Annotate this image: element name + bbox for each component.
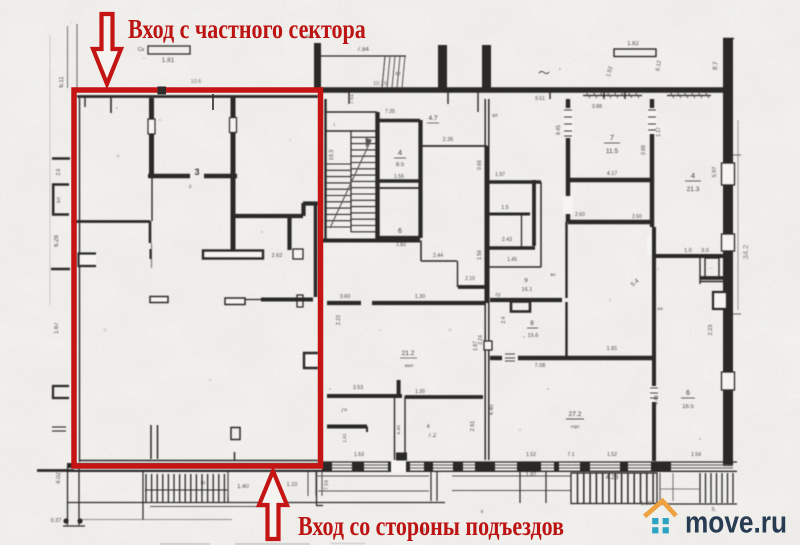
svg-text:1.55: 1.55 — [394, 174, 404, 180]
svg-text:0.88: 0.88 — [641, 145, 647, 155]
svg-text:5.97: 5.97 — [712, 167, 718, 178]
svg-text:1.45: 1.45 — [507, 257, 517, 263]
svg-text:1.56: 1.56 — [477, 250, 483, 260]
svg-text:1.17: 1.17 — [656, 127, 662, 137]
svg-text:0.66: 0.66 — [477, 160, 483, 170]
svg-text:4.17: 4.17 — [607, 171, 617, 177]
svg-text:7.54: 7.54 — [324, 480, 330, 490]
svg-text:3.60: 3.60 — [340, 294, 350, 300]
svg-text:7.08: 7.08 — [535, 363, 546, 369]
svg-text:2.6: 2.6 — [56, 168, 62, 175]
svg-text:10.6: 10.6 — [191, 79, 202, 85]
svg-text:1.54: 1.54 — [691, 452, 701, 458]
svg-text:1.30: 1.30 — [415, 389, 425, 395]
svg-text:Ск: Ск — [138, 47, 145, 53]
svg-text:жил: жил — [405, 364, 414, 369]
svg-text:11.5: 11.5 — [606, 148, 619, 155]
svg-text:⋯: ⋯ — [709, 266, 714, 271]
svg-text:4.40: 4.40 — [489, 405, 495, 416]
svg-text:1.87: 1.87 — [526, 472, 537, 478]
svg-text:1.30: 1.30 — [415, 294, 425, 300]
svg-text:1.97: 1.97 — [495, 172, 505, 178]
svg-text:4.49: 4.49 — [654, 395, 660, 405]
svg-text:7.35: 7.35 — [385, 109, 395, 115]
svg-text:1.5: 1.5 — [501, 205, 508, 211]
svg-text:1.61: 1.61 — [342, 433, 348, 443]
svg-text:9.51: 9.51 — [535, 96, 545, 102]
svg-text:7: 7 — [610, 133, 614, 142]
svg-text:34.2: 34.2 — [741, 245, 750, 260]
svg-text:7.2: 7.2 — [428, 433, 437, 439]
svg-text:10.16: 10.16 — [373, 81, 387, 87]
svg-text:4.40: 4.40 — [396, 425, 402, 435]
svg-text:1.10: 1.10 — [641, 501, 652, 507]
svg-text:торг: торг — [570, 425, 579, 430]
svg-text:3.24: 3.24 — [478, 335, 484, 345]
svg-text:4.7: 4.7 — [428, 115, 437, 122]
svg-text:0.37: 0.37 — [51, 518, 62, 524]
svg-text:～: ～ — [538, 66, 550, 80]
svg-text:21.2: 21.2 — [402, 350, 415, 357]
svg-text:2.61: 2.61 — [470, 421, 476, 432]
svg-text:су: су — [496, 292, 502, 298]
svg-text:Вход с частного сектора: Вход с частного сектора — [128, 15, 366, 45]
svg-text:2.43: 2.43 — [502, 237, 512, 243]
svg-text:27.2: 27.2 — [569, 411, 582, 418]
svg-text:6: 6 — [686, 390, 690, 397]
svg-text:16.1: 16.1 — [522, 287, 533, 293]
svg-text:16.5: 16.5 — [682, 404, 694, 410]
svg-text:1.10: 1.10 — [287, 482, 298, 488]
svg-text:1.52: 1.52 — [607, 452, 617, 458]
svg-text:кр: кр — [396, 71, 401, 77]
svg-text:2.4: 2.4 — [501, 316, 507, 323]
svg-text:3.0: 3.0 — [701, 248, 709, 254]
svg-text:⋯: ⋯ — [142, 56, 147, 62]
svg-text:Вход со стороны подъездов: Вход со стороны подъездов — [298, 512, 564, 542]
svg-text:1.67: 1.67 — [54, 322, 60, 334]
svg-text:1.40: 1.40 — [237, 484, 249, 490]
svg-text:6.28: 6.28 — [54, 235, 60, 247]
svg-text:7.1: 7.1 — [567, 452, 574, 458]
svg-text:8.7: 8.7 — [713, 61, 720, 70]
svg-text:э: э — [189, 184, 192, 190]
svg-text:3: 3 — [194, 167, 199, 177]
svg-text:1.0: 1.0 — [684, 248, 692, 254]
svg-text:2.10: 2.10 — [465, 276, 475, 282]
svg-text:move.ru: move.ru — [685, 506, 787, 541]
svg-text:7.51: 7.51 — [349, 94, 355, 104]
svg-text:3.53: 3.53 — [353, 385, 363, 391]
svg-text:18.3: 18.3 — [329, 150, 335, 161]
svg-text:8.45: 8.45 — [556, 125, 562, 135]
svg-text:2.23: 2.23 — [336, 315, 342, 325]
svg-text:шк: шк — [657, 306, 663, 311]
svg-text:0.88: 0.88 — [592, 104, 602, 110]
svg-text:2.62: 2.62 — [272, 253, 283, 259]
svg-text:2.60: 2.60 — [575, 212, 585, 218]
svg-text:21.3: 21.3 — [687, 186, 700, 193]
svg-text:1.52: 1.52 — [526, 452, 536, 458]
svg-text:1.81: 1.81 — [162, 57, 175, 64]
svg-text:1.81: 1.81 — [607, 346, 618, 352]
svg-text:2.23: 2.23 — [708, 325, 714, 336]
svg-text:4: 4 — [398, 148, 402, 157]
svg-text:8: 8 — [530, 320, 534, 327]
svg-text:2.60: 2.60 — [632, 214, 642, 220]
svg-text:4.28: 4.28 — [606, 474, 619, 481]
svg-text:2.35: 2.35 — [443, 137, 454, 143]
svg-text:4.02: 4.02 — [56, 472, 62, 484]
svg-text:1.63: 1.63 — [354, 452, 364, 458]
svg-text:БЛ: БЛ — [56, 197, 61, 203]
svg-text:вн: вн — [551, 272, 556, 277]
svg-text:6.11: 6.11 — [59, 76, 65, 88]
svg-text:15.6: 15.6 — [528, 333, 539, 339]
svg-text:8.5: 8.5 — [396, 162, 405, 168]
svg-text:↓: ↓ — [333, 122, 336, 128]
svg-text:1.82: 1.82 — [627, 41, 639, 47]
svg-text:7×: 7× — [341, 408, 348, 414]
svg-text:4: 4 — [426, 424, 429, 430]
svg-text:4: 4 — [691, 171, 695, 180]
svg-text:ш: ш — [201, 480, 206, 486]
svg-text:↓: ↓ — [657, 266, 660, 272]
svg-text:6: 6 — [398, 228, 402, 235]
svg-text:2.44: 2.44 — [433, 253, 443, 259]
svg-text:1.82: 1.82 — [396, 242, 406, 248]
svg-text:7.84: 7.84 — [357, 47, 369, 53]
svg-text:кл: кл — [492, 113, 497, 119]
